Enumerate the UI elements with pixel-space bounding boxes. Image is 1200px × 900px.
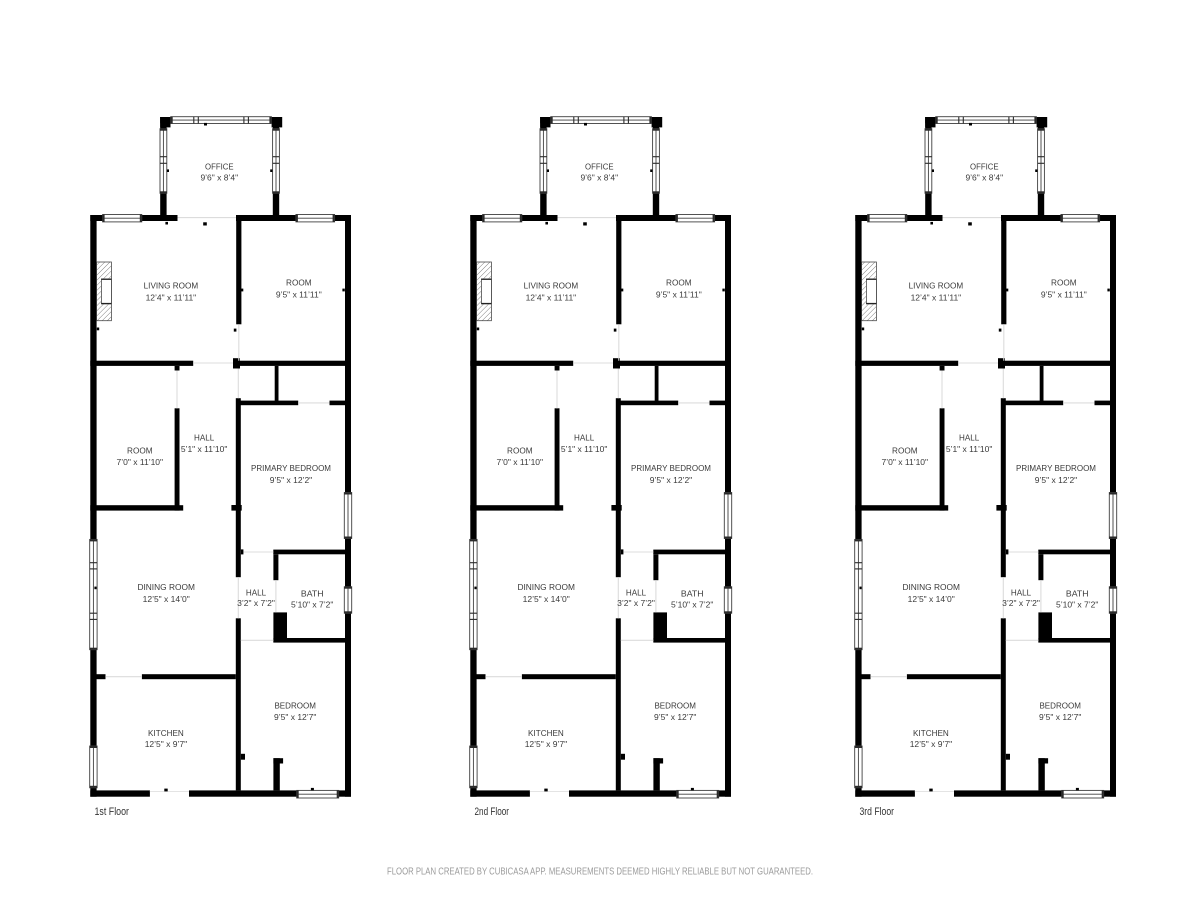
svg-text:9’5" x 11’11": 9’5" x 11’11" — [656, 289, 702, 299]
svg-text:2nd Floor: 2nd Floor — [475, 806, 510, 818]
svg-text:3’2" x 7’2": 3’2" x 7’2" — [237, 598, 275, 608]
svg-text:BEDROOM: BEDROOM — [654, 701, 696, 711]
svg-text:9’6" x 8’4": 9’6" x 8’4" — [580, 173, 618, 183]
svg-text:9’5" x 12’7": 9’5" x 12’7" — [274, 712, 316, 722]
svg-text:BATH: BATH — [1066, 588, 1089, 598]
svg-text:BEDROOM: BEDROOM — [274, 701, 316, 711]
svg-text:12’5" x 14’0": 12’5" x 14’0" — [523, 594, 570, 604]
svg-text:12’5" x 14’0": 12’5" x 14’0" — [908, 594, 955, 604]
svg-text:9’5" x 11’11": 9’5" x 11’11" — [1041, 289, 1087, 299]
svg-text:9’5" x 12’7": 9’5" x 12’7" — [654, 712, 696, 722]
svg-text:5’10" x 7’2": 5’10" x 7’2" — [671, 599, 713, 609]
svg-text:ROOM: ROOM — [666, 278, 692, 288]
svg-text:3’2" x 7’2": 3’2" x 7’2" — [617, 598, 655, 608]
svg-text:7’0" x 11’10": 7’0" x 11’10" — [882, 457, 929, 467]
svg-text:ROOM: ROOM — [1051, 278, 1077, 288]
svg-text:9’6" x 8’4": 9’6" x 8’4" — [965, 173, 1003, 183]
svg-text:ROOM: ROOM — [507, 445, 533, 455]
svg-text:12’4" x 11’11": 12’4" x 11’11" — [146, 293, 197, 303]
svg-text:LIVING ROOM: LIVING ROOM — [144, 280, 199, 290]
svg-text:9’5" x 12’2": 9’5" x 12’2" — [270, 475, 312, 485]
svg-text:KITCHEN: KITCHEN — [528, 728, 564, 738]
svg-text:DINING ROOM: DINING ROOM — [902, 582, 960, 592]
svg-text:12’4" x 11’11": 12’4" x 11’11" — [911, 293, 962, 303]
svg-text:9’5" x 11’11": 9’5" x 11’11" — [276, 289, 322, 299]
svg-text:OFFICE: OFFICE — [585, 161, 614, 171]
svg-text:5’1" x 11’10": 5’1" x 11’10" — [561, 444, 608, 454]
svg-text:HALL: HALL — [959, 433, 979, 443]
svg-text:3rd Floor: 3rd Floor — [860, 806, 895, 818]
svg-text:LIVING ROOM: LIVING ROOM — [909, 280, 964, 290]
svg-text:12’5" x 9’7": 12’5" x 9’7" — [525, 739, 567, 749]
svg-text:5’10" x 7’2": 5’10" x 7’2" — [1056, 599, 1098, 609]
svg-text:PRIMARY BEDROOM: PRIMARY BEDROOM — [1016, 463, 1096, 473]
svg-text:HALL: HALL — [574, 433, 594, 443]
svg-text:9’5" x 12’2": 9’5" x 12’2" — [1035, 475, 1077, 485]
svg-text:DINING ROOM: DINING ROOM — [517, 582, 575, 592]
svg-text:5’1" x 11’10": 5’1" x 11’10" — [946, 444, 993, 454]
svg-text:LIVING ROOM: LIVING ROOM — [524, 280, 579, 290]
svg-text:BATH: BATH — [681, 588, 704, 598]
svg-text:BATH: BATH — [301, 588, 324, 598]
svg-text:9’5" x 12’7": 9’5" x 12’7" — [1039, 712, 1081, 722]
svg-text:12’5" x 14’0": 12’5" x 14’0" — [143, 594, 190, 604]
svg-text:PRIMARY BEDROOM: PRIMARY BEDROOM — [631, 463, 711, 473]
svg-text:HALL: HALL — [1011, 588, 1031, 598]
svg-text:OFFICE: OFFICE — [970, 161, 999, 171]
svg-text:KITCHEN: KITCHEN — [913, 728, 949, 738]
svg-text:12’5" x 9’7": 12’5" x 9’7" — [145, 739, 187, 749]
svg-text:HALL: HALL — [194, 433, 214, 443]
svg-text:7’0" x 11’10": 7’0" x 11’10" — [497, 457, 544, 467]
svg-text:ROOM: ROOM — [892, 445, 918, 455]
svg-text:5’1" x 11’10": 5’1" x 11’10" — [181, 444, 228, 454]
svg-text:DINING ROOM: DINING ROOM — [137, 582, 195, 592]
svg-text:OFFICE: OFFICE — [205, 161, 234, 171]
svg-text:1st Floor: 1st Floor — [95, 806, 130, 818]
svg-text:3’2" x 7’2": 3’2" x 7’2" — [1002, 598, 1040, 608]
svg-text:12’4" x 11’11": 12’4" x 11’11" — [526, 293, 577, 303]
svg-text:7’0" x 11’10": 7’0" x 11’10" — [117, 457, 164, 467]
svg-text:ROOM: ROOM — [127, 445, 153, 455]
svg-text:BEDROOM: BEDROOM — [1039, 701, 1081, 711]
svg-text:FLOOR PLAN CREATED BY CUBICASA: FLOOR PLAN CREATED BY CUBICASA APP. MEAS… — [387, 867, 813, 878]
svg-text:ROOM: ROOM — [286, 278, 312, 288]
svg-text:KITCHEN: KITCHEN — [148, 728, 184, 738]
svg-text:9’5" x 12’2": 9’5" x 12’2" — [650, 475, 692, 485]
svg-text:9’6" x 8’4": 9’6" x 8’4" — [200, 173, 238, 183]
svg-text:HALL: HALL — [626, 588, 646, 598]
svg-text:PRIMARY BEDROOM: PRIMARY BEDROOM — [251, 463, 331, 473]
svg-text:12’5" x 9’7": 12’5" x 9’7" — [910, 739, 952, 749]
svg-text:HALL: HALL — [246, 588, 266, 598]
svg-text:5’10" x 7’2": 5’10" x 7’2" — [291, 599, 333, 609]
